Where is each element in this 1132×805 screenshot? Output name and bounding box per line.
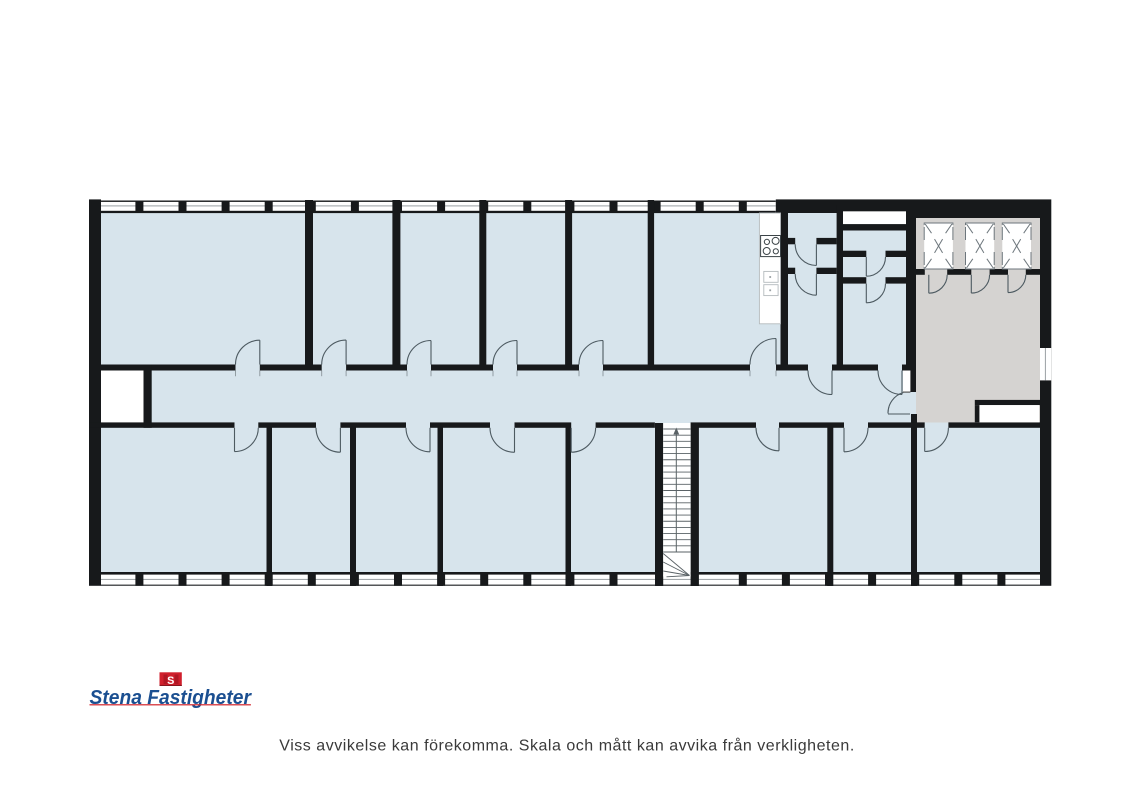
svg-text:Viss avvikelse kan förekomma.: Viss avvikelse kan förekomma. Skala och …	[279, 736, 854, 754]
